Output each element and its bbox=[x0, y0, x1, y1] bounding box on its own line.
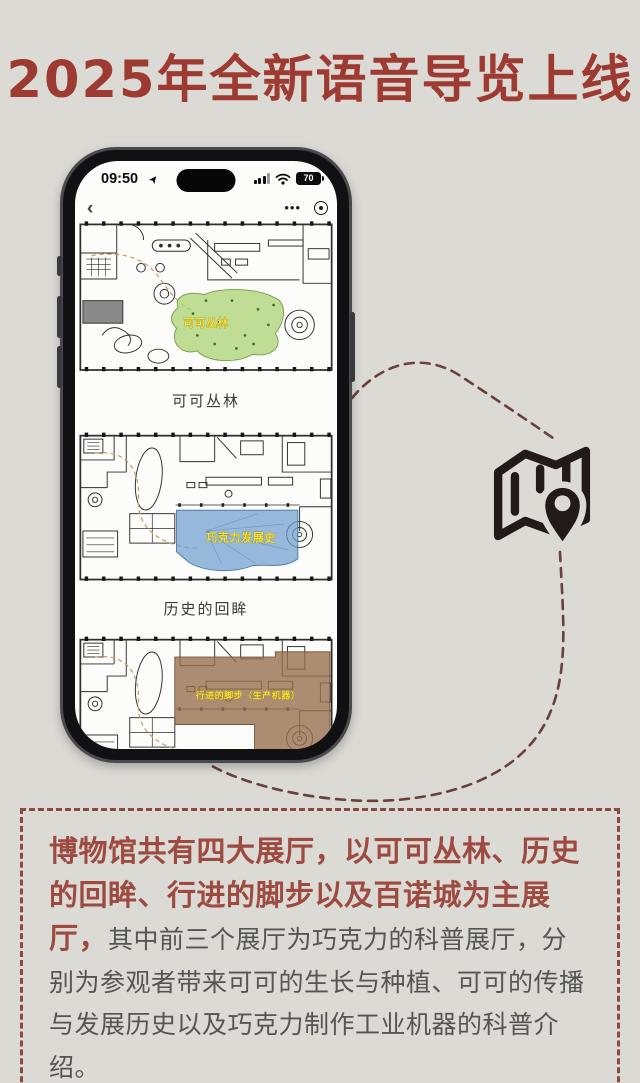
phone-action-button bbox=[57, 256, 62, 276]
phone-power-button bbox=[350, 312, 355, 382]
page-title: 2025年全新语音导览上线 bbox=[0, 38, 640, 112]
phone-mockup: 09:50 ➤ 70 ‹ bbox=[60, 147, 352, 763]
battery-icon: 70 bbox=[296, 172, 321, 185]
wifi-icon bbox=[275, 173, 291, 185]
minimize-target-button[interactable] bbox=[314, 201, 328, 215]
zone-label-cocoa-jungle: 可可丛林 bbox=[183, 316, 228, 330]
location-arrow-icon: ➤ bbox=[146, 172, 162, 187]
zone-label-production-machines: 行进的脚步（生产机器） bbox=[195, 690, 301, 701]
description-box: 博物馆共有四大展厅，以可可丛林、历史的回眸、行进的脚步以及百诺城为主展厅，其中前… bbox=[20, 808, 620, 1083]
status-bar: 09:50 ➤ 70 bbox=[75, 168, 337, 194]
phone-volume-down-button bbox=[57, 346, 62, 388]
phone-screen: 09:50 ➤ 70 ‹ bbox=[75, 161, 337, 749]
hall-name-cocoa-jungle: 可可丛林 bbox=[75, 390, 337, 411]
zone-label-chocolate-history: 巧克力发展史 bbox=[206, 530, 276, 544]
phone-volume-up-button bbox=[57, 296, 62, 338]
floor-plan-cocoa-jungle: 可可丛林 bbox=[76, 214, 336, 380]
poster-canvas: 2025年全新语音导览上线 09:50 ➤ bbox=[0, 0, 640, 1083]
dynamic-island bbox=[177, 169, 236, 192]
map-pin-icon bbox=[486, 437, 598, 555]
more-options-button[interactable]: ••• bbox=[284, 201, 301, 215]
hall-name-history: 历史的回眸 bbox=[75, 598, 337, 619]
floor-plan-marching-steps: 行进的脚步（生产机器） bbox=[76, 631, 336, 749]
floor-plan-history: 巧克力发展史 bbox=[76, 427, 336, 588]
signal-icon bbox=[254, 173, 271, 184]
description-body-text: 其中前三个展厅为巧克力的科普展厅，分别为参观者带来可可的生长与种植、可可的传播与… bbox=[49, 926, 585, 1082]
clock: 09:50 bbox=[101, 171, 138, 187]
